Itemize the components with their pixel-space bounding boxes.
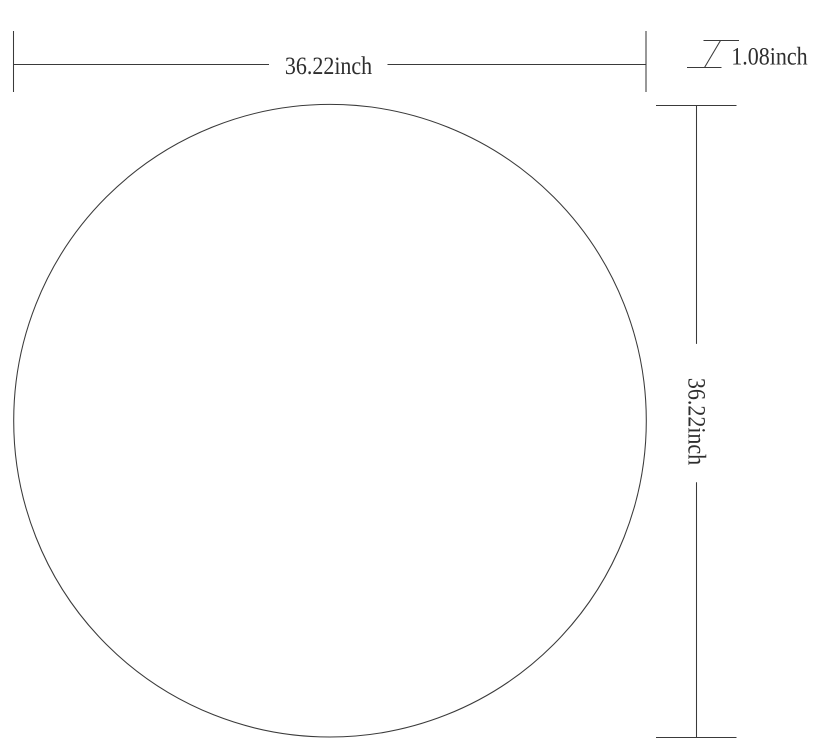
svg-text:36.22inch: 36.22inch (285, 53, 372, 81)
svg-text:1.08inch: 1.08inch (731, 43, 807, 71)
svg-text:36.22inch: 36.22inch (682, 378, 710, 465)
